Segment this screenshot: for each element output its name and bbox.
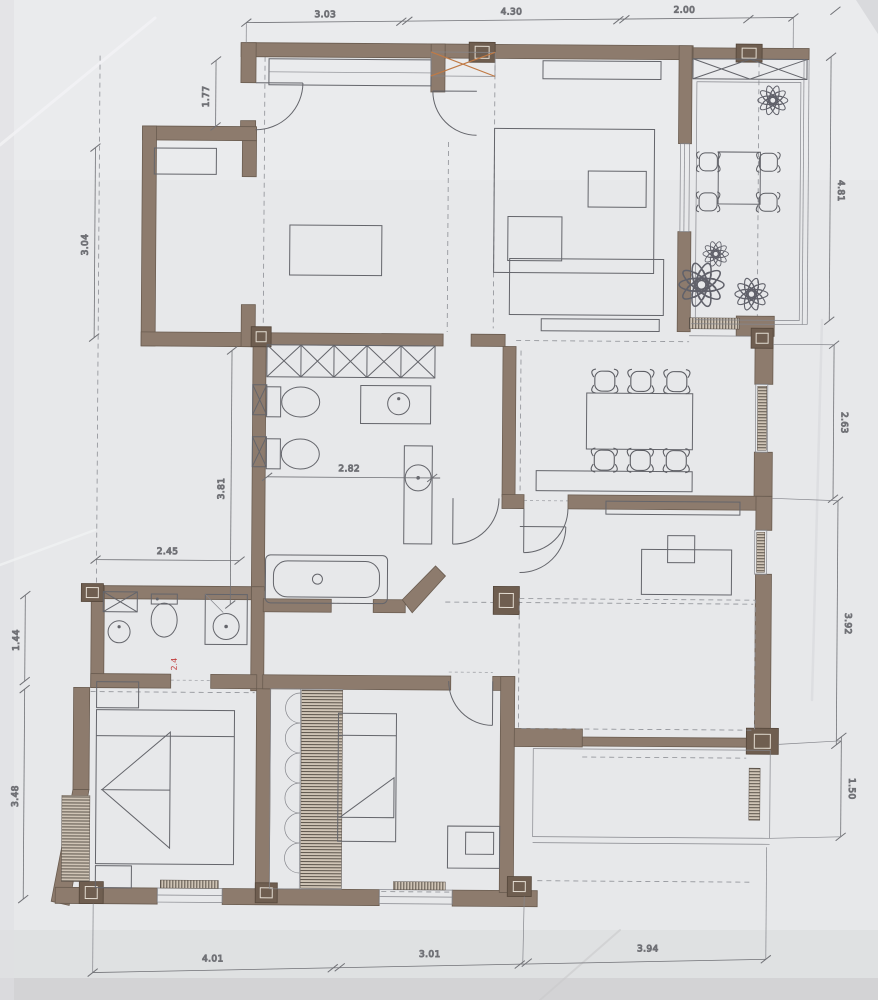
dim-bedroom-right: 3.92 <box>842 613 852 635</box>
dim-bath-width: 2.82 <box>338 464 360 474</box>
dim-top-3: 2.00 <box>674 6 696 16</box>
dim-bottom-1: 4.01 <box>202 954 224 964</box>
red-annotation: 2.4 <box>170 658 179 671</box>
dim-bottom-2: 3.01 <box>419 950 441 960</box>
floor-plan-photo: 2.4 <box>0 0 878 1000</box>
radiator <box>61 795 90 881</box>
dim-balcony-right: 1.50 <box>846 778 856 800</box>
dim-left-bay: 3.04 <box>81 234 91 256</box>
dim-terrace-right: 4.81 <box>835 180 845 202</box>
dim-bottom-3: 3.94 <box>637 944 659 954</box>
dim-wc-width: 2.45 <box>157 547 179 557</box>
dim-left-wall: 1.77 <box>202 86 212 108</box>
dim-bath-height: 3.81 <box>217 478 227 500</box>
dim-bedroom-left: 3.48 <box>11 785 21 807</box>
dim-dining-right: 2.63 <box>838 412 848 434</box>
dim-top-1: 3.03 <box>315 10 337 20</box>
dim-top-2: 4.30 <box>501 7 523 17</box>
dim-wc-height: 1.44 <box>12 629 22 651</box>
floor-plan-svg: 2.4 <box>0 0 878 1000</box>
